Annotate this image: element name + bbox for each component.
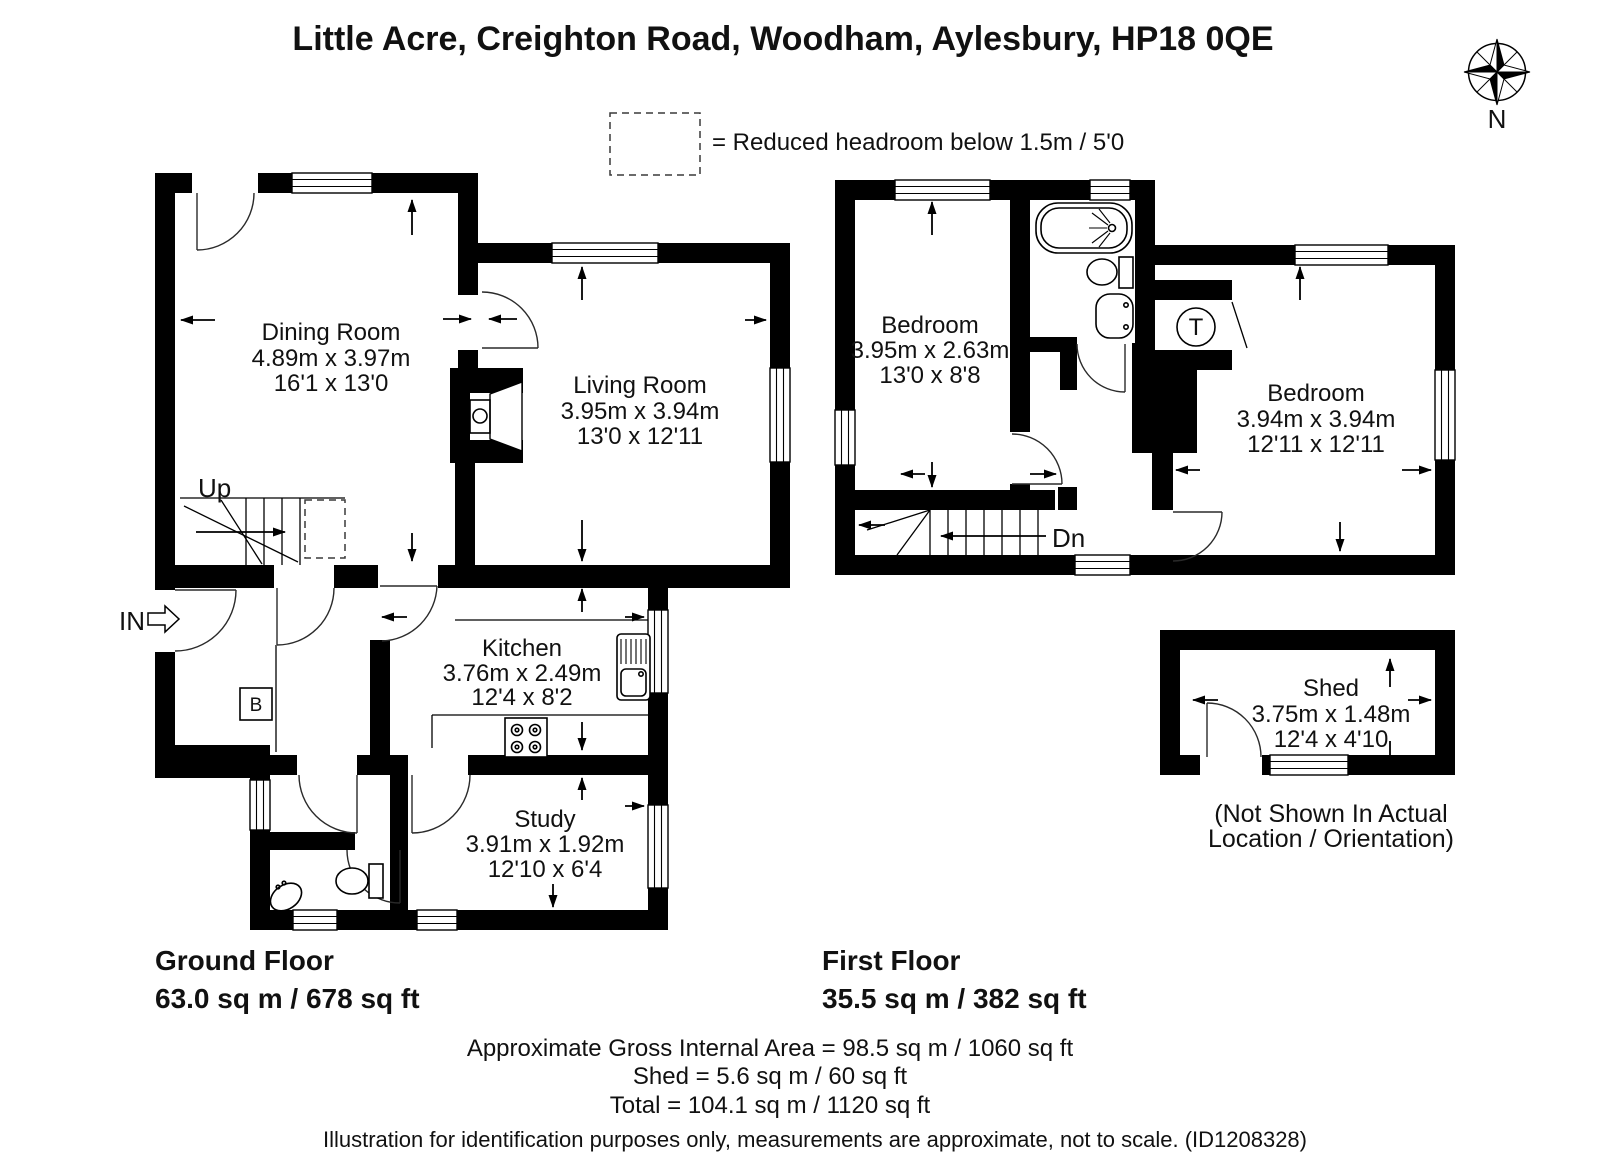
window [895, 180, 990, 200]
door [482, 292, 538, 348]
door [277, 588, 334, 645]
svg-text:13'0 x 12'11: 13'0 x 12'11 [577, 423, 703, 450]
svg-text:3.76m x 2.49m: 3.76m x 2.49m [443, 660, 602, 687]
svg-text:3.94m x 3.94m: 3.94m x 3.94m [1237, 406, 1396, 433]
kitchen-sink [617, 634, 650, 700]
window [1090, 180, 1130, 200]
room-label-dining: Dining Room 4.89m x 3.97m 16'1 x 13'0 [252, 319, 411, 397]
basin [1096, 294, 1133, 338]
door [1077, 344, 1125, 392]
svg-text:12'10 x 6'4: 12'10 x 6'4 [488, 856, 603, 883]
toilet [1087, 257, 1133, 288]
door [1012, 434, 1062, 484]
boiler-cupboard: B [240, 645, 276, 752]
tank-cupboard: T [1177, 302, 1247, 348]
window [293, 910, 337, 930]
room-label-kitchen: Kitchen 3.76m x 2.49m 12'4 x 8'2 [443, 635, 602, 711]
front-door [175, 590, 236, 651]
svg-text:3.75m x 1.48m: 3.75m x 1.48m [1252, 701, 1411, 728]
window [835, 410, 855, 465]
reduced-headroom-area [305, 500, 345, 558]
compass-north-label: N [1488, 104, 1507, 134]
bath [1036, 203, 1132, 253]
window [292, 173, 372, 193]
svg-text:12'4 x 4'10: 12'4 x 4'10 [1274, 726, 1389, 753]
window [1295, 245, 1388, 265]
shed-plan: Shed 3.75m x 1.48m 12'4 x 4'10 (Not Show… [1160, 630, 1455, 853]
tank-label: T [1189, 314, 1204, 341]
first-floor-title: First Floor [822, 945, 961, 976]
ground-floor-title: Ground Floor [155, 945, 334, 976]
entrance: IN [119, 606, 179, 636]
hob [505, 718, 547, 757]
room-label-study: Study 3.91m x 1.92m 12'10 x 6'4 [466, 806, 625, 883]
svg-text:Bedroom: Bedroom [881, 312, 978, 339]
reduced-headroom-swatch [610, 113, 700, 175]
svg-text:12'11 x 12'11: 12'11 x 12'11 [1247, 431, 1385, 458]
ground-floor-plan: Up [119, 173, 790, 930]
room-label-bedroom1: Bedroom 3.95m x 2.63m 13'0 x 8'8 [851, 312, 1010, 389]
window [1075, 555, 1130, 575]
toilet [336, 864, 383, 898]
window [250, 780, 270, 830]
svg-text:Living Room: Living Room [573, 372, 706, 399]
room-label-bedroom2: Bedroom 3.94m x 3.94m 12'11 x 12'11 [1237, 380, 1396, 458]
svg-text:Dining Room: Dining Room [262, 319, 401, 346]
room-label-shed: Shed 3.75m x 1.48m 12'4 x 4'10 [1252, 675, 1411, 753]
window [552, 243, 658, 263]
page-title: Little Acre, Creighton Road, Woodham, Ay… [292, 20, 1273, 58]
svg-text:Study: Study [514, 806, 575, 833]
stairs-down: Dn [867, 510, 1085, 555]
door [197, 193, 254, 250]
svg-text:13'0 x 8'8: 13'0 x 8'8 [879, 362, 980, 389]
area-summary: Approximate Gross Internal Area = 98.5 s… [467, 1035, 1074, 1119]
first-floor-area: 35.5 sq m / 382 sq ft [822, 983, 1087, 1014]
fireplace [450, 368, 523, 463]
door [1173, 512, 1222, 561]
door [380, 586, 437, 641]
floorplan-drawing: Little Acre, Creighton Road, Woodham, Ay… [0, 0, 1600, 1156]
window [417, 910, 457, 930]
room-label-living: Living Room 3.95m x 3.94m 13'0 x 12'11 [561, 372, 720, 450]
entrance-label: IN [119, 606, 145, 636]
first-floor-plan: T Dn Bedroom 3.95m x 2.63m [835, 180, 1455, 575]
svg-text:Bedroom: Bedroom [1267, 380, 1364, 407]
svg-text:(Not Shown In Actual: (Not Shown In Actual [1214, 800, 1447, 828]
svg-text:3.91m x 1.92m: 3.91m x 1.92m [466, 831, 625, 858]
window [648, 805, 668, 888]
svg-text:Shed: Shed [1303, 675, 1359, 702]
window [1435, 370, 1455, 460]
window [1270, 755, 1348, 775]
door [299, 775, 357, 833]
shed-note: (Not Shown In Actual Location / Orientat… [1208, 800, 1454, 853]
svg-text:Kitchen: Kitchen [482, 635, 562, 662]
stairs-down-label: Dn [1052, 523, 1085, 553]
legend-label: = Reduced headroom below 1.5m / 5'0 [712, 129, 1124, 156]
svg-text:3.95m x 2.63m: 3.95m x 2.63m [851, 337, 1010, 364]
stairs-up-label: Up [198, 473, 231, 503]
svg-text:12'4 x 8'2: 12'4 x 8'2 [471, 684, 572, 711]
window [770, 368, 790, 462]
floor-summaries: Ground Floor 63.0 sq m / 678 sq ft First… [155, 945, 1087, 1014]
floorplan-page: Little Acre, Creighton Road, Woodham, Ay… [0, 0, 1600, 1156]
boiler-label: B [250, 695, 263, 716]
stairs-up: Up [180, 473, 345, 565]
legend: = Reduced headroom below 1.5m / 5'0 [610, 113, 1124, 175]
ground-floor-area: 63.0 sq m / 678 sq ft [155, 983, 420, 1014]
svg-text:3.95m x 3.94m: 3.95m x 3.94m [561, 398, 720, 425]
total-area: Total = 104.1 sq m / 1120 sq ft [610, 1092, 931, 1119]
door [412, 775, 470, 833]
compass-icon: N [1464, 39, 1530, 134]
svg-text:Location / Orientation): Location / Orientation) [1208, 825, 1454, 853]
svg-text:16'1 x 13'0: 16'1 x 13'0 [274, 370, 389, 397]
shed-area: Shed = 5.6 sq m / 60 sq ft [633, 1063, 907, 1090]
svg-text:4.89m x 3.97m: 4.89m x 3.97m [252, 345, 411, 372]
disclaimer: Illustration for identification purposes… [323, 1127, 1307, 1152]
gross-internal-area: Approximate Gross Internal Area = 98.5 s… [467, 1035, 1074, 1062]
window [648, 610, 668, 693]
entrance-arrow-icon [148, 606, 179, 632]
